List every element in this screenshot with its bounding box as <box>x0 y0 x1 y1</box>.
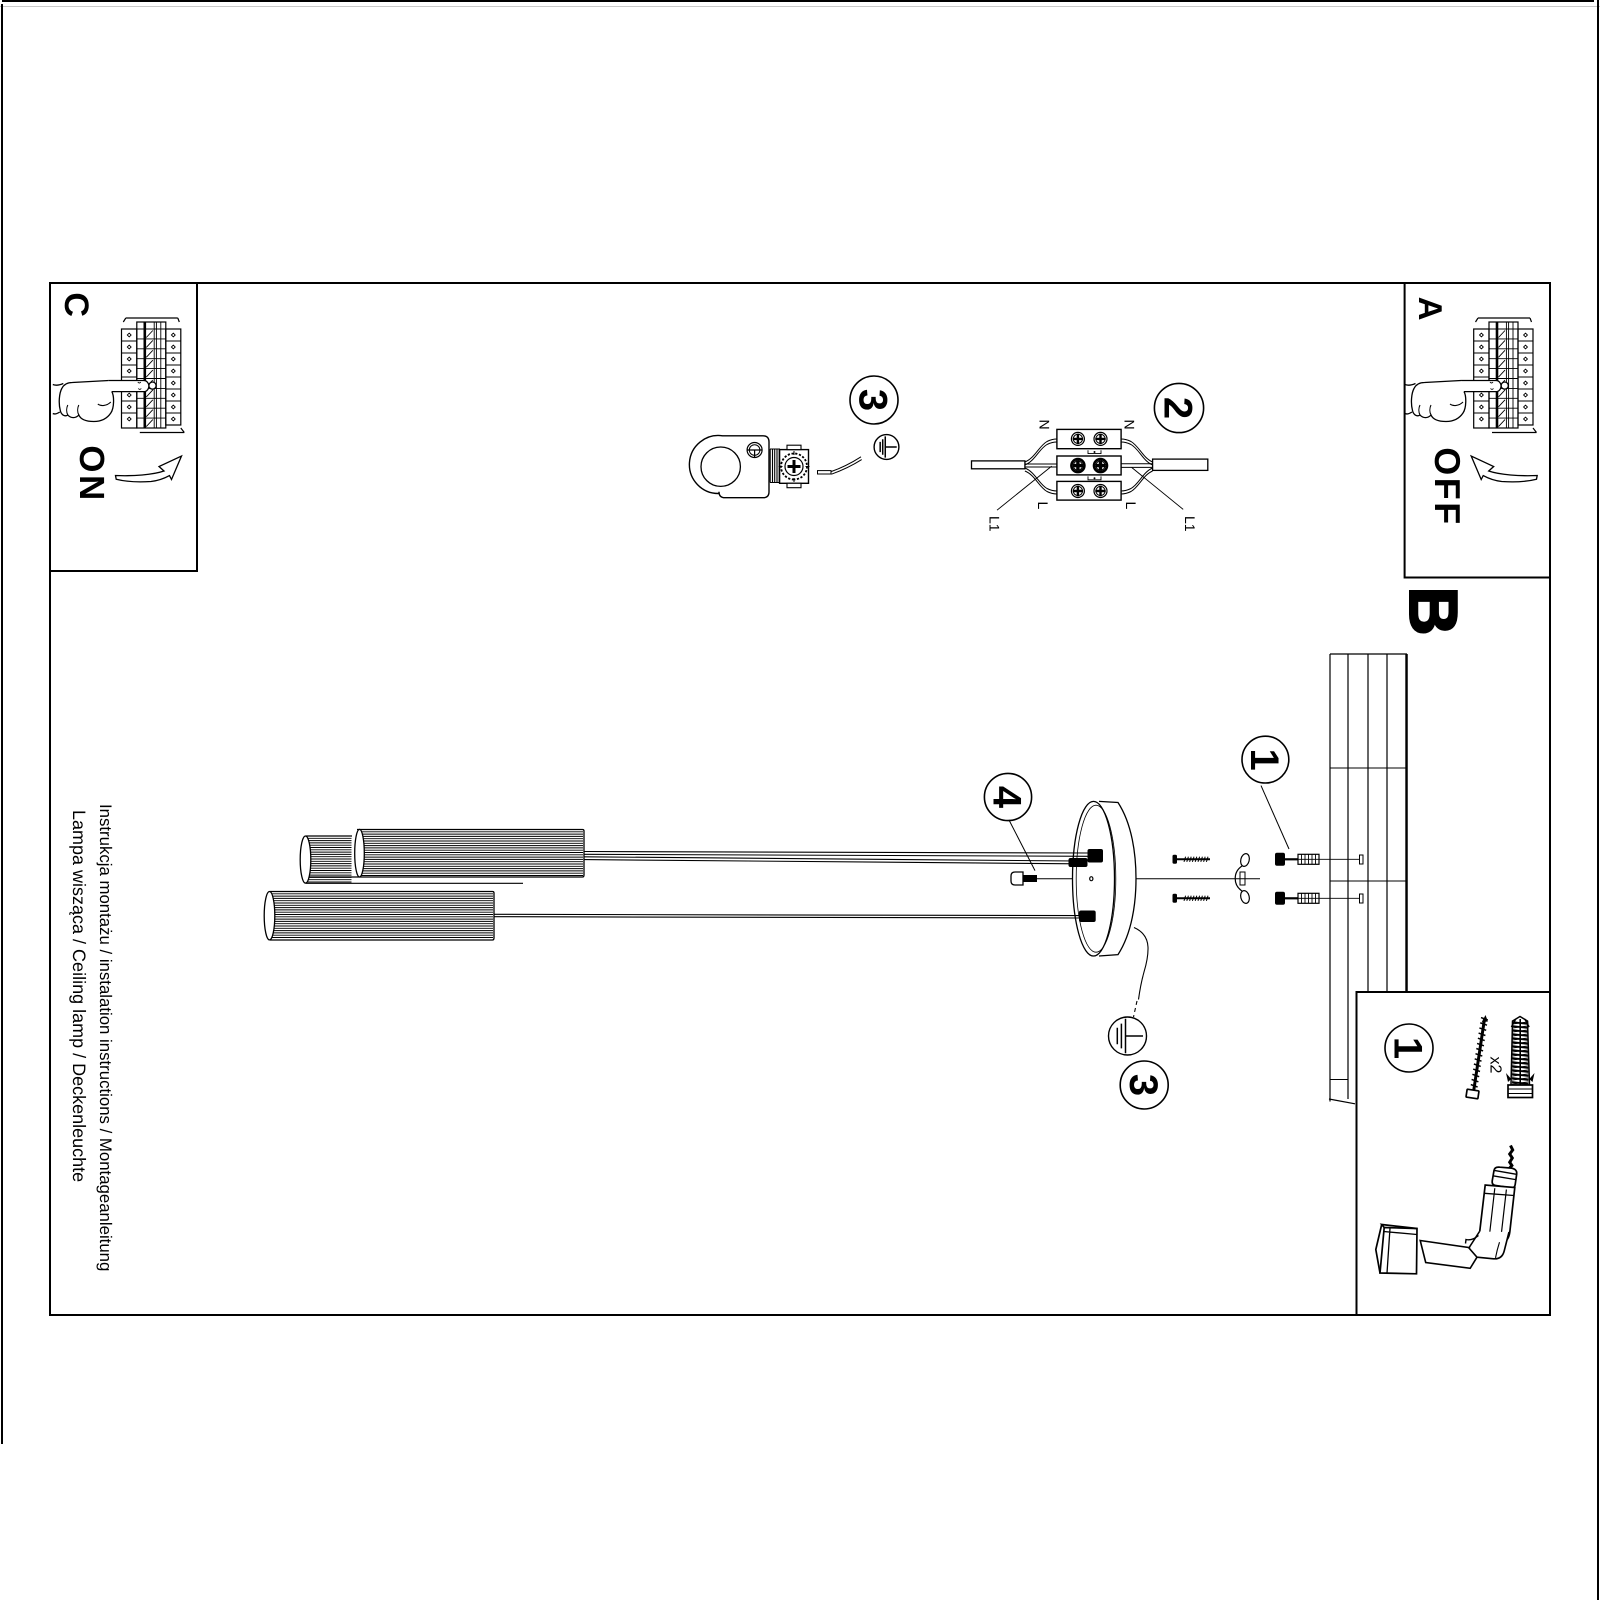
svg-text:L1: L1 <box>1182 516 1198 532</box>
svg-text:3: 3 <box>851 389 895 411</box>
svg-text:L: L <box>1035 502 1051 510</box>
svg-text:B: B <box>1395 586 1471 635</box>
svg-text:2: 2 <box>1156 397 1200 419</box>
svg-text:C: C <box>57 292 95 317</box>
svg-text:L1: L1 <box>987 516 1003 532</box>
svg-text:Lampa wisząca / Ceiling lamp /: Lampa wisząca / Ceiling lamp / Deckenleu… <box>69 810 89 1182</box>
svg-text:x2: x2 <box>1487 1057 1504 1074</box>
svg-text:N: N <box>1037 419 1053 429</box>
svg-text:N: N <box>1122 419 1138 429</box>
svg-text:1: 1 <box>1242 748 1286 770</box>
svg-text:OFF: OFF <box>1427 447 1468 526</box>
svg-text:1: 1 <box>1386 1037 1430 1059</box>
svg-text:ON: ON <box>72 445 111 503</box>
svg-text:3: 3 <box>1121 1074 1165 1096</box>
svg-text:A: A <box>1412 297 1449 321</box>
svg-text:L: L <box>1123 502 1139 510</box>
svg-text:4: 4 <box>985 786 1029 809</box>
svg-text:Instrukcja montażu / instalati: Instrukcja montażu / instalation instruc… <box>96 804 115 1271</box>
